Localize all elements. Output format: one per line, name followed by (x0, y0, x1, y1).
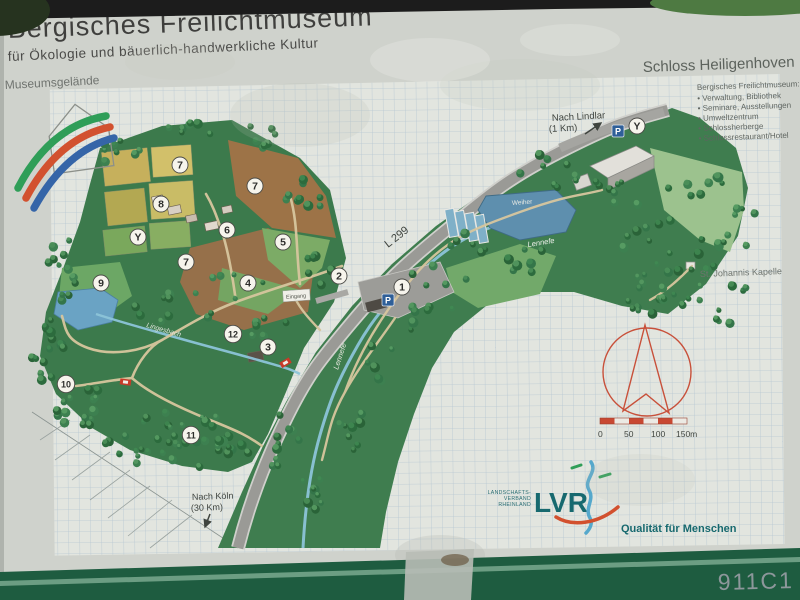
sign-photo: Eingang PP 12345677789101112YY L 299 Nac… (0, 0, 800, 600)
svg-text:50: 50 (624, 429, 634, 439)
map-marker: 7 (247, 178, 263, 194)
lvr-acronym: LVR (534, 487, 588, 518)
svg-text:0: 0 (598, 429, 603, 439)
map-marker: 1 (394, 279, 410, 295)
parking-icon: P (612, 125, 624, 137)
map-marker: 12 (224, 325, 241, 342)
photo-code: 911C1 (717, 567, 794, 595)
svg-text:100: 100 (651, 429, 665, 439)
map-marker-label: 5 (280, 236, 286, 248)
map-marker: Y (629, 118, 645, 134)
parking-icon: P (382, 294, 394, 306)
map-marker: 9 (93, 275, 109, 291)
map-marker-label: 6 (224, 224, 230, 236)
entrance-sign: Eingang (283, 289, 311, 302)
map-marker-label: 2 (336, 270, 342, 282)
map-marker-label: 4 (245, 277, 251, 289)
map-marker: 5 (275, 234, 291, 250)
lvr-tagline: Qualität für Menschen (621, 523, 737, 535)
svg-text:P: P (385, 296, 391, 306)
map-marker: 11 (182, 426, 199, 443)
museum-sign: Eingang PP 12345677789101112YY L 299 Nac… (0, 0, 800, 600)
map-marker-label: Y (134, 231, 141, 243)
map-marker-label: 7 (177, 159, 183, 171)
direction-lindlar-dist: (1 Km) (549, 123, 578, 135)
map-marker-label: 9 (98, 277, 104, 289)
map-marker: 6 (219, 222, 235, 238)
map-marker-label: 8 (158, 198, 164, 210)
direction-koeln-dist: (30 Km) (191, 502, 223, 513)
pond-label: Weiher (512, 199, 534, 207)
map-marker: 4 (240, 275, 256, 291)
map-marker-label: 3 (265, 341, 271, 353)
map-marker-label: 7 (252, 180, 258, 192)
map-marker: Y (130, 229, 146, 245)
svg-text:150m: 150m (676, 429, 697, 439)
map-marker: 7 (178, 254, 194, 270)
map-marker-label: Y (633, 120, 640, 132)
map-marker-label: 12 (228, 329, 238, 339)
svg-text:RHEINLAND: RHEINLAND (498, 502, 531, 508)
map-marker: 7 (172, 157, 188, 173)
map-marker-label: 10 (61, 379, 71, 389)
map-marker-label: 1 (399, 281, 405, 293)
map-marker: 10 (57, 375, 74, 392)
sign-edge (0, 14, 4, 574)
map-marker: 8 (153, 196, 169, 212)
map-marker: 2 (331, 268, 347, 284)
svg-text:P: P (615, 127, 621, 137)
direction-koeln: Nach Köln (192, 491, 234, 502)
map-marker-label: 11 (186, 430, 196, 440)
map-marker: 3 (260, 339, 276, 355)
map-marker-label: 7 (183, 256, 189, 268)
